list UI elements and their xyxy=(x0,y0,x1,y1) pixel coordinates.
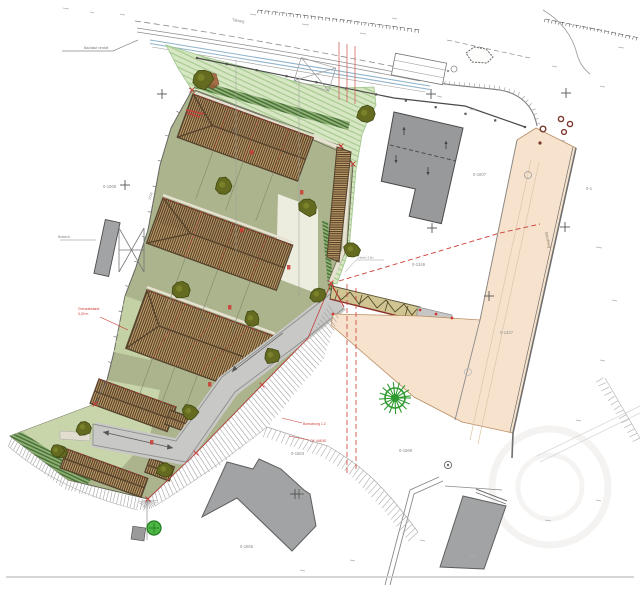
svg-text:Bachlauf verdolt: Bachlauf verdolt xyxy=(84,46,108,50)
svg-text:Grenzabstand: Grenzabstand xyxy=(78,307,99,311)
svg-text:3,00 m: 3,00 m xyxy=(78,312,89,316)
svg-text:Bestand: Bestand xyxy=(58,235,70,239)
svg-text:0-1007: 0-1007 xyxy=(473,172,487,177)
svg-text:0-1346: 0-1346 xyxy=(412,262,426,267)
svg-text:Zufahrt 3,5m: Zufahrt 3,5m xyxy=(357,256,375,260)
svg-text:0-1565: 0-1565 xyxy=(240,544,254,549)
svg-text:0-1569: 0-1569 xyxy=(399,448,413,453)
svg-text:0-1563: 0-1563 xyxy=(291,451,305,456)
svg-text:0-1327: 0-1327 xyxy=(500,330,514,335)
svg-text:0-1068: 0-1068 xyxy=(103,184,117,189)
svg-text:OK 448,50: OK 448,50 xyxy=(310,439,326,443)
svg-text:Boeschung 1:2: Boeschung 1:2 xyxy=(303,422,326,426)
svg-text:0-1: 0-1 xyxy=(586,186,593,191)
